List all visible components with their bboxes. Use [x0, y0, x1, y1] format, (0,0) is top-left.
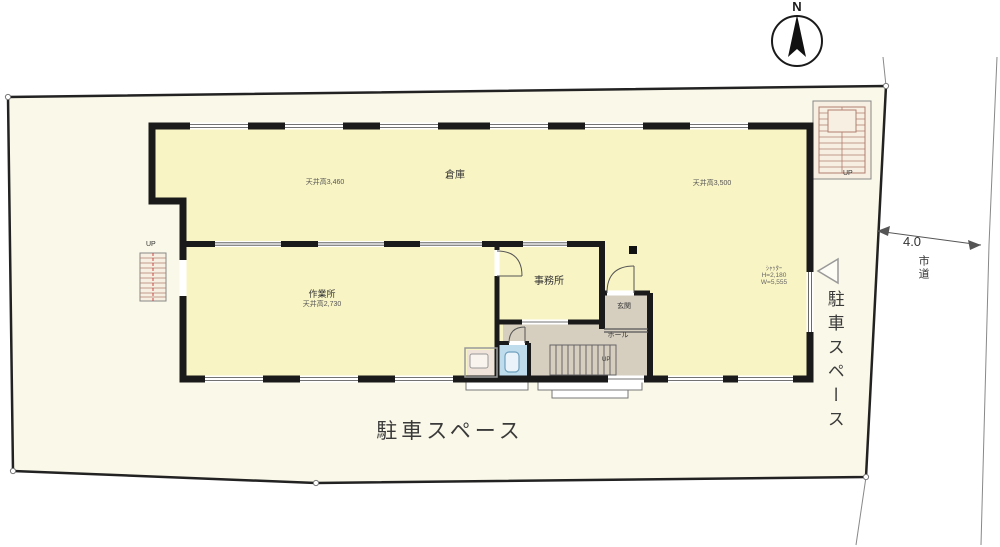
left-wall-opening: [180, 260, 187, 296]
road-width-label: 4.0: [903, 235, 921, 249]
washbasin-fixture: [470, 354, 488, 368]
shutter-note-line3: W=5,555: [748, 279, 800, 286]
left-stair-up-label: UP: [146, 241, 156, 249]
road-width-dimension-arrow: [877, 226, 981, 250]
warehouse-ceiling-left-label: 天井高3,460: [306, 179, 345, 187]
warehouse-ceiling-right-label: 天井高3,500: [693, 180, 732, 188]
right-stair-up-label: UP: [843, 170, 853, 178]
floor-plan-drawing: [0, 0, 1000, 547]
shutter-opening: [807, 272, 814, 332]
floor-plan: N 4.0 市道 駐車スペース 駐車スペース 倉庫 天井高3,460 天井高3,…: [0, 0, 1000, 547]
hall-stair-up-label: UP: [602, 357, 610, 364]
column-marker: [629, 246, 637, 254]
entrance-floor: [604, 295, 648, 328]
toilet-fixture: [505, 352, 519, 372]
shutter-note: ｼｬｯﾀｰ H=2,180 W=5,555: [748, 265, 800, 286]
office-label: 事務所: [534, 276, 564, 287]
road-name-label: 市道: [917, 255, 929, 281]
entrance-label: 玄関: [617, 303, 631, 311]
building-footprint: [152, 126, 810, 379]
workshop-label: 作業所: [308, 290, 335, 300]
workshop-ceiling-label: 天井高2,730: [303, 301, 342, 309]
parking-space-label-right: 駐車スペース: [824, 290, 843, 434]
exterior-staircase-left: [140, 253, 166, 301]
hall-label: ホール: [608, 332, 629, 340]
parking-space-label-bottom: 駐車スペース: [376, 420, 523, 443]
toilet-door-opening: [509, 341, 525, 345]
exterior-staircase-right: [813, 101, 871, 179]
warehouse-label: 倉庫: [445, 170, 465, 181]
north-label: N: [792, 0, 801, 14]
entrance-inner-door-opening: [607, 291, 634, 296]
shutter-note-line2: H=2,180: [748, 272, 800, 279]
compass-icon: [772, 15, 822, 66]
shutter-note-line1: ｼｬｯﾀｰ: [748, 265, 800, 272]
office-door-opening: [495, 250, 500, 276]
